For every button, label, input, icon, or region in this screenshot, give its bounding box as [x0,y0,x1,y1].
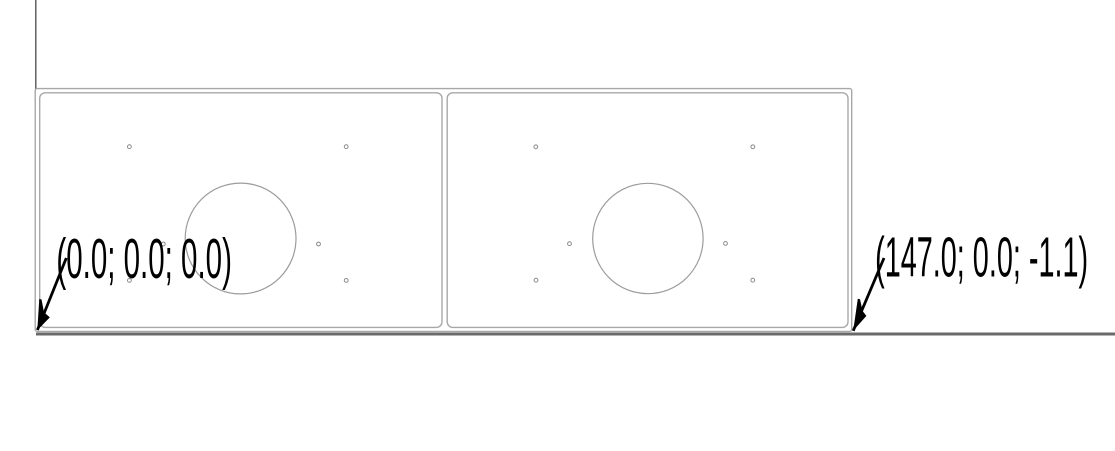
svg-text:(0.0; 0.0; 0.0): (0.0; 0.0; 0.0) [56,227,232,291]
svg-text:(147.0; 0.0; -1.1): (147.0; 0.0; -1.1) [875,225,1088,289]
